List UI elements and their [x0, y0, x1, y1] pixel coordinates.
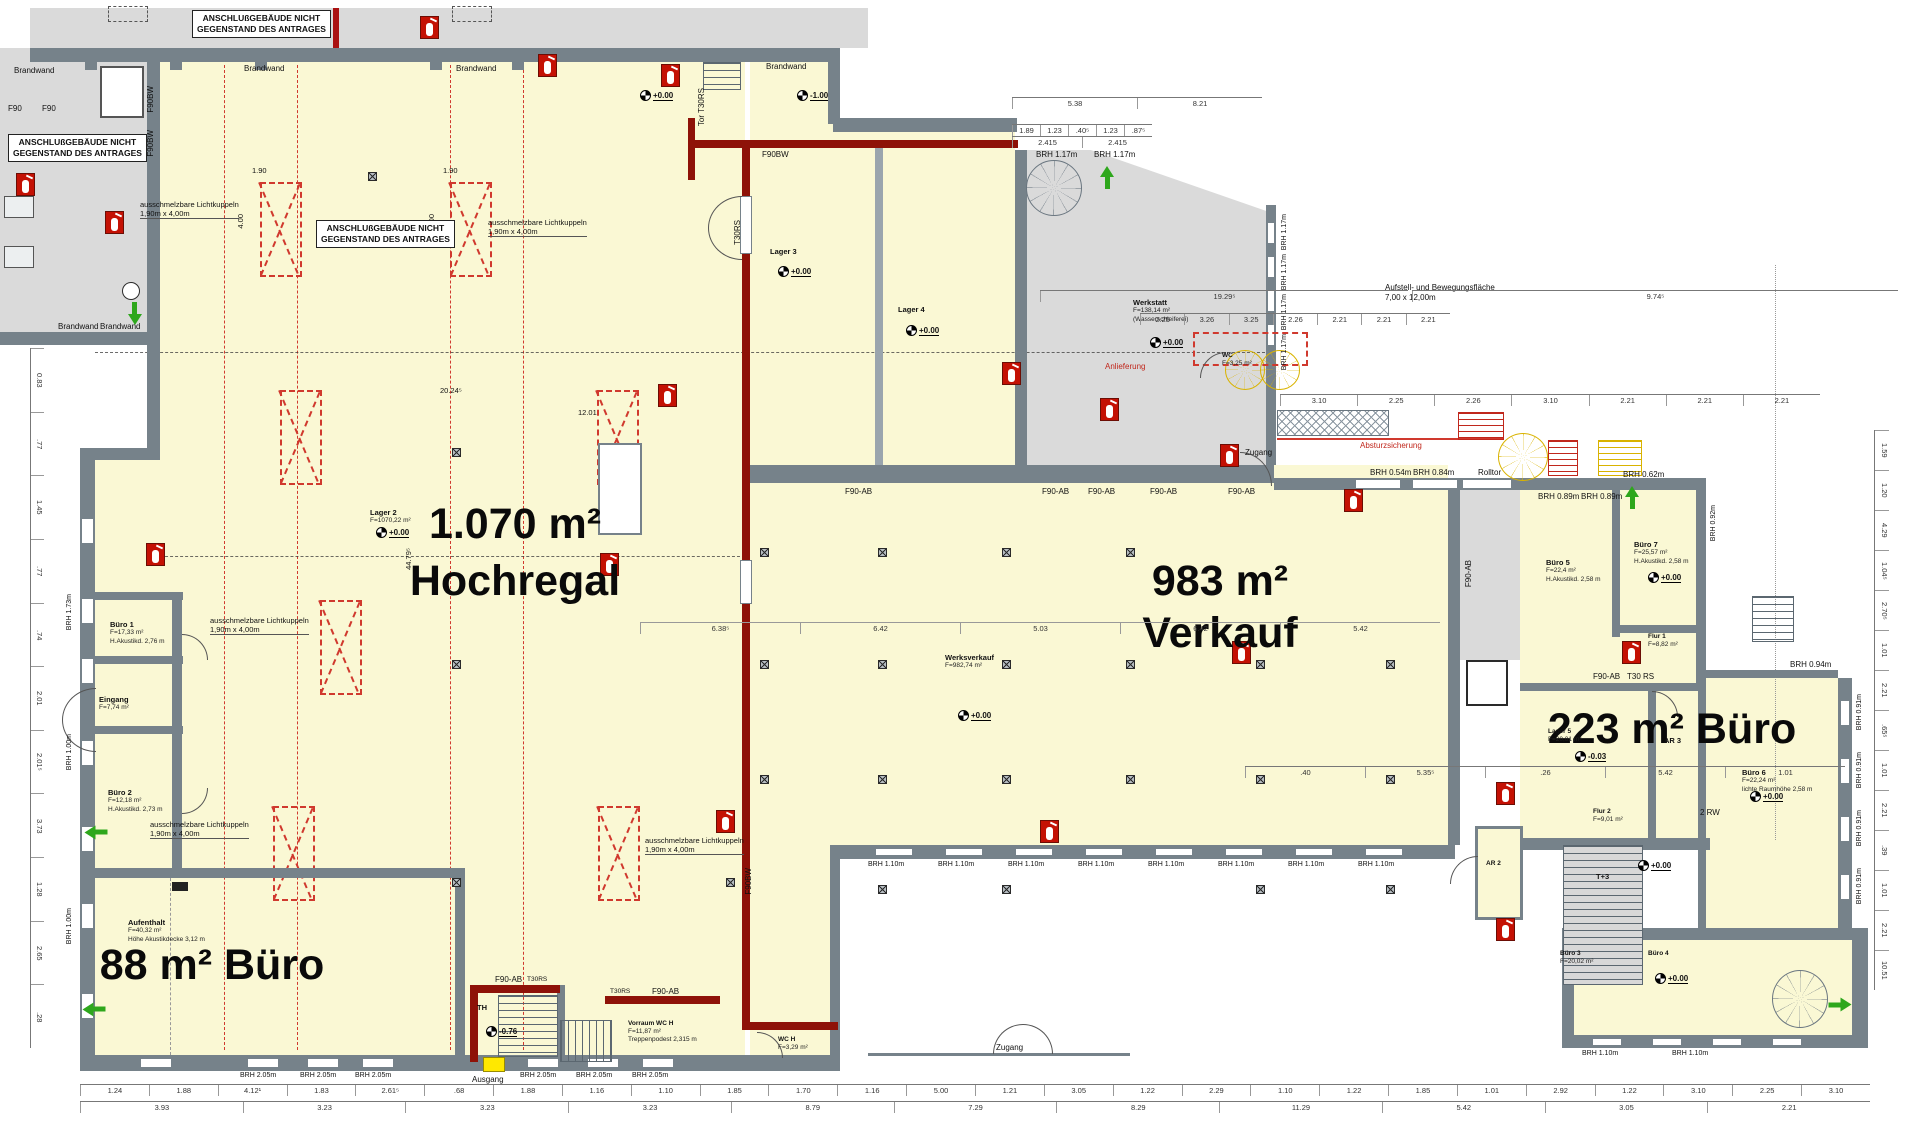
column-symbol — [760, 775, 769, 784]
dimension-col-right: 1.591.204.291.04⁵2.70⁵1.012.21.65⁵1.012.… — [1874, 430, 1889, 990]
area-title-hochregal-name: Hochregal — [410, 560, 620, 603]
dim-value: 1.22 — [1595, 1085, 1664, 1096]
desk-symbol — [4, 196, 34, 218]
dim-value: 1.83 — [287, 1085, 356, 1096]
room-info: F=12,18 m² — [108, 797, 163, 805]
dim-value: .87⁵ — [1124, 125, 1152, 136]
elevation-value: -1.00 — [810, 91, 828, 101]
room-label-buero5: Büro 5 F=22,4 m² H.Akustikd. 2,58 m — [1546, 558, 1601, 584]
room-info: H.Akustikd. 2,58 m — [1634, 558, 1689, 566]
room-label-t3: T+3 — [1596, 872, 1609, 881]
zugang-label: Zugang — [1245, 448, 1272, 458]
dim-value: 19.29⁵ — [1040, 291, 1408, 302]
dim-value: 5.42 — [1605, 767, 1725, 778]
fire-wall — [688, 140, 1018, 148]
area-title-verkauf-size: 983 m² — [1152, 560, 1288, 603]
room-name: Büro 7 — [1634, 540, 1689, 549]
room-info: F=17,33 m² — [110, 629, 165, 637]
room-info: F=3,25 m² — [1222, 360, 1252, 368]
column-symbol — [760, 548, 769, 557]
stairs-red — [1548, 440, 1578, 476]
dim-value: 2.61⁵ — [355, 1085, 424, 1096]
column-symbol — [878, 660, 887, 669]
dim-value: .40⁵ — [1068, 125, 1096, 136]
column-symbol — [1002, 885, 1011, 894]
t30rs-label: T30RS — [733, 220, 743, 245]
lichtkuppel-line2: 1,90m x 4,00m — [488, 227, 587, 237]
dimension-row-top2: 2.4152.415 — [1012, 136, 1152, 148]
area-title-buero88: 88 m² Büro — [100, 944, 325, 987]
fire-wall — [688, 118, 695, 180]
fire-extinguisher-icon — [105, 211, 124, 234]
room-info: F=9,01 m² — [1593, 816, 1623, 824]
lichtkuppel-line2: 1,90m x 4,00m — [140, 209, 239, 219]
fire-extinguisher-icon — [1100, 398, 1119, 421]
dim-value: 7.29 — [894, 1102, 1057, 1113]
fire-wall — [605, 996, 720, 1004]
elevation-marker: +0.00 — [778, 266, 811, 277]
wall — [1852, 928, 1868, 1048]
dim-value: 1.88 — [149, 1085, 218, 1096]
dim-value: 1.21 — [975, 1085, 1044, 1096]
dim-value: 3.23 — [568, 1102, 731, 1113]
window — [1355, 479, 1401, 489]
elevation-marker: -0.76 — [486, 1026, 517, 1037]
door-opening — [740, 560, 752, 604]
dim-value: 1.85 — [700, 1085, 769, 1096]
dim-value: .65⁵ — [1875, 710, 1889, 750]
column-symbol — [1126, 660, 1135, 669]
stairs — [560, 1020, 612, 1062]
fire-extinguisher-icon — [716, 810, 735, 833]
room-name: WC H — [778, 1036, 808, 1044]
f90ab-label: F90-AB — [845, 487, 872, 497]
machine-symbol — [122, 282, 140, 300]
fire-extinguisher-icon — [420, 16, 439, 39]
zugang-label: Zugang — [996, 1043, 1023, 1053]
room-label-lager5: Lager 5 F=20,01 m² — [1548, 728, 1581, 744]
dim-value: 1.28 — [31, 857, 44, 921]
dim-value: 1.23 — [1040, 125, 1068, 136]
elevation-marker: +0.00 — [1638, 860, 1671, 871]
dim-value: 5.00 — [906, 1085, 975, 1096]
window — [81, 598, 94, 624]
wall — [1612, 625, 1706, 633]
column-symbol — [878, 885, 887, 894]
fire-extinguisher-icon — [538, 54, 557, 77]
dim-value: 2.25 — [1140, 314, 1184, 325]
brandwand-label: Brandwand — [58, 322, 98, 332]
spiral-stairs-icon — [1498, 433, 1548, 481]
f90ab-label: F90-AB — [1228, 487, 1255, 497]
room-info: H.Akustikd. 2,76 m — [110, 638, 165, 646]
room-label-wc: WC F=3,25 m² — [1222, 352, 1252, 368]
lichtkuppel-line1: ausschmelzbare Lichtkuppeln — [488, 218, 587, 227]
lichtkuppel-line1: ausschmelzbare Lichtkuppeln — [150, 820, 249, 829]
wall — [95, 726, 183, 734]
wall — [30, 48, 840, 62]
dim-value: 3.10 — [1801, 1085, 1870, 1096]
dim-value: 3.25 — [1229, 314, 1273, 325]
annex-note-line1: ANSCHLUßGEBÄUDE NICHT — [13, 137, 142, 148]
dim-label: 12.01 — [578, 408, 597, 417]
elevation-marker: +0.00 — [906, 325, 939, 336]
column-symbol — [368, 172, 377, 181]
dim-value: 5.42 — [1280, 623, 1440, 634]
dim-value: 3.05 — [1044, 1085, 1113, 1096]
dim-value: 2.21 — [1406, 314, 1450, 325]
lichtkuppel-line2: 1,90m x 4,00m — [210, 625, 309, 635]
dim-value: 2.415 — [1082, 137, 1152, 148]
room-info: F=8,82 m² — [1648, 641, 1678, 649]
window — [247, 1058, 279, 1068]
room-name: Büro 2 — [108, 788, 163, 797]
t30rs-label: T30RS — [527, 976, 547, 984]
brh-label: BRH 1.10m — [1218, 861, 1254, 869]
brh-label: BRH 1.73m — [66, 594, 74, 630]
room-name: Werksverkauf — [945, 653, 994, 662]
lichtkuppel-label: ausschmelzbare Lichtkuppeln 1,90m x 4,00… — [150, 820, 249, 839]
column-symbol — [760, 660, 769, 669]
f90ab-label: F90-AB — [1150, 487, 1177, 497]
dim-value: 1.45 — [31, 475, 44, 539]
window — [1267, 222, 1275, 244]
wall — [95, 592, 183, 600]
wall-pilaster — [170, 62, 182, 70]
dim-label: 1.90 — [252, 166, 267, 175]
elevation-value: +0.00 — [1651, 861, 1671, 871]
room-label-vorraum: Vorraum WC H F=11,87 m² Treppenpodest 2,… — [628, 1020, 697, 1044]
crossed-shaft — [100, 66, 144, 118]
tor-t30rs-label: Tor T30RS — [697, 88, 707, 126]
column-symbol — [1256, 660, 1265, 669]
room-info: F=20,02 m² — [1560, 958, 1593, 966]
fire-extinguisher-icon — [1622, 641, 1641, 664]
fire-wall-marker — [333, 8, 339, 48]
dim-value: 1.22 — [1113, 1085, 1182, 1096]
column-symbol — [1002, 548, 1011, 557]
window — [1592, 1038, 1622, 1046]
area-title-hochregal-size: 1.070 m² — [429, 503, 601, 546]
dim-value: 2.92 — [1526, 1085, 1595, 1096]
window — [1840, 874, 1850, 900]
dim-value: 3.10 — [1280, 395, 1357, 406]
dim-value: 3.05 — [1545, 1102, 1708, 1113]
dim-value: 1.01 — [1875, 750, 1889, 790]
wall — [95, 656, 183, 664]
dim-value: 2.21 — [1875, 910, 1889, 950]
dim-value: 1.20 — [1875, 470, 1889, 510]
dim-value: 2.21 — [1666, 395, 1743, 406]
room-name: Büro 5 — [1546, 558, 1601, 567]
wall-pilaster — [85, 62, 97, 70]
column-symbol — [452, 660, 461, 669]
room-label-ar2: AR 2 — [1486, 860, 1501, 868]
room-label-aufenthalt: Aufenthalt F=40,32 m² Höhe Akustikdecke … — [128, 918, 205, 944]
room-label-buero3: Büro 3 F=20,02 m² — [1560, 950, 1593, 966]
column-symbol — [1126, 775, 1135, 784]
room-label-th: TH — [477, 1003, 487, 1012]
room-name: Lager 5 — [1548, 728, 1581, 736]
dim-value: 2.01⁵ — [31, 730, 44, 794]
brh-label: BRH 0.94m — [1790, 660, 1831, 670]
room-label-buero1: Büro 1 F=17,33 m² H.Akustikd. 2,76 m — [110, 620, 165, 646]
annex-note-line2: GEGENSTAND DES ANTRAGES — [13, 148, 142, 159]
dim-label: 44.79⁵ — [404, 548, 413, 570]
light-dome — [280, 390, 322, 485]
f90ab-label: F90-AB — [495, 975, 522, 985]
dimension-row-bottom-right: .405.35⁵.265.421.01 — [1245, 766, 1845, 778]
dim-value: 1.01 — [1457, 1085, 1526, 1096]
room-name: Flur 2 — [1593, 808, 1623, 816]
annex-note-box: ANSCHLUßGEBÄUDE NICHT GEGENSTAND DES ANT… — [316, 220, 455, 248]
dim-value: 6.42 — [1120, 623, 1280, 634]
floor-plan: ANSCHLUßGEBÄUDE NICHT GEGENSTAND DES ANT… — [0, 0, 1919, 1129]
dim-value: 1.88 — [493, 1085, 562, 1096]
brh-label: BRH 1.17m — [1036, 150, 1077, 160]
elevation-value: +0.00 — [919, 326, 939, 336]
window — [1840, 816, 1850, 842]
room-label-lager4: Lager 4 — [898, 305, 925, 314]
f90ab-label: F90-AB — [1088, 487, 1115, 497]
room-name: TH — [477, 1003, 487, 1012]
dimension-long-a: 19.29⁵ — [1040, 290, 1408, 302]
dim-value: 4.12¹ — [218, 1085, 287, 1096]
room-label-buero2: Büro 2 F=12,18 m² H.Akustikd. 2,73 m — [108, 788, 163, 814]
lichtkuppel-label: ausschmelzbare Lichtkuppeln 1,90m x 4,00… — [488, 218, 587, 237]
brh-label: BRH 1.17m — [1281, 214, 1289, 250]
f90bw-label: F90BW — [146, 130, 156, 157]
brh-label: BRH 2.05m — [355, 1072, 391, 1080]
room-name: Lager 2 — [370, 508, 411, 517]
dim-value: 2.25 — [1357, 395, 1434, 406]
dimension-row-bottom1: 1.241.884.12¹1.832.61⁵.681.881.161.101.8… — [80, 1084, 1870, 1096]
dim-value: 2.01 — [31, 666, 44, 730]
dim-value: 1.89 — [1012, 125, 1040, 136]
dim-value: 2.21 — [1589, 395, 1666, 406]
window — [81, 903, 94, 929]
dim-value: 2.21 — [1875, 670, 1889, 710]
dim-value: 3.23 — [405, 1102, 568, 1113]
fire-extinguisher-icon — [1344, 489, 1363, 512]
light-dome — [450, 182, 492, 277]
storage-room-ar2 — [1475, 826, 1523, 920]
room-label-flur2: Flur 2 F=9,01 m² — [1593, 808, 1623, 824]
dim-value: .28 — [31, 984, 44, 1048]
room-label-wch: WC H F=3,29 m² — [778, 1036, 808, 1052]
wall — [750, 465, 1274, 483]
column-symbol — [1256, 885, 1265, 894]
dim-value: 3.23 — [243, 1102, 406, 1113]
brh-label: BRH 1.17m — [1094, 150, 1135, 160]
dim-value: 1.59 — [1875, 430, 1889, 470]
window — [1652, 1038, 1682, 1046]
elevation-value: +0.00 — [1661, 573, 1681, 583]
fire-extinguisher-icon — [1496, 782, 1515, 805]
lichtkuppel-line1: ausschmelzbare Lichtkuppeln — [645, 836, 744, 845]
room-label-lager2: Lager 2 F=1070,22 m² — [370, 508, 411, 526]
brh-label: BRH 0.89m — [1581, 492, 1622, 502]
dim-value: 1.01 — [1875, 630, 1889, 670]
dim-label: 4.00 — [236, 214, 245, 229]
room-info: F=22,24 m² — [1742, 777, 1812, 785]
fire-extinguisher-icon — [146, 543, 165, 566]
column-symbol — [1002, 775, 1011, 784]
dim-value: 6.38⁵ — [640, 623, 800, 634]
elevation-marker: -1.00 — [797, 90, 828, 101]
escape-arrow-icon — [83, 1003, 108, 1017]
dim-value: 2.415 — [1012, 137, 1082, 148]
stairs — [703, 62, 741, 90]
dim-value: 1.85 — [1388, 1085, 1457, 1096]
dim-value: 3.93 — [80, 1102, 243, 1113]
dim-value: 5.03 — [960, 623, 1120, 634]
fire-extinguisher-icon — [1496, 918, 1515, 941]
f90ab-label: F90-AB — [652, 987, 679, 997]
tag-chip — [172, 882, 188, 891]
dim-value: 2.26 — [1434, 395, 1511, 406]
brh-label: BRH 2.05m — [576, 1072, 612, 1080]
dim-value: 1.23 — [1096, 125, 1124, 136]
annex-note-line1: ANSCHLUßGEBÄUDE NICHT — [197, 13, 326, 24]
t30rs-label: T30 RS — [1627, 672, 1654, 682]
room-label-flur1: Flur 1 F=8,82 m² — [1648, 633, 1678, 649]
dim-value: 1.16 — [562, 1085, 631, 1096]
desk-symbol — [4, 246, 34, 268]
window — [1015, 848, 1053, 856]
dimension-row-mid: 2.253.263.252.262.212.212.21 — [1140, 313, 1450, 325]
brh-label: BRH 1.10m — [1672, 1050, 1708, 1058]
window — [945, 848, 983, 856]
room-name: Flur 1 — [1648, 633, 1678, 641]
escape-arrow-icon — [1827, 998, 1852, 1012]
dim-value: 2.65 — [31, 921, 44, 985]
floor-lager-west — [750, 62, 835, 465]
f90ab-label: F90-AB — [1464, 560, 1474, 587]
room-label-buero7: Büro 7 F=25,57 m² H.Akustikd. 2,58 m — [1634, 540, 1689, 566]
room-info: F=1070,22 m² — [370, 517, 411, 525]
annex-zone-top — [30, 8, 868, 48]
dim-value: .39 — [1875, 830, 1889, 870]
window — [642, 1058, 674, 1068]
light-dome — [320, 600, 362, 695]
dim-value: 1.01 — [1725, 767, 1845, 778]
escape-arrow-icon — [1100, 166, 1114, 191]
window — [81, 658, 94, 684]
stairs — [1752, 596, 1794, 642]
room-name: Büro 3 — [1560, 950, 1593, 958]
room-name: AR 3 — [1664, 736, 1681, 745]
room-name: T+3 — [1596, 872, 1609, 881]
dimension-row-top0: 5.388.21 — [1012, 97, 1262, 109]
fire-extinguisher-icon — [1220, 444, 1239, 467]
lichtkuppel-label: ausschmelzbare Lichtkuppeln 1,90m x 4,00… — [140, 200, 239, 219]
room-info: F=20,01 m² — [1548, 736, 1581, 744]
brh-label: BRH 0.62m — [1623, 470, 1664, 480]
wall — [1612, 490, 1620, 637]
f90bw-label: F90BW — [146, 86, 156, 113]
window — [1085, 848, 1123, 856]
room-name: WC — [1222, 352, 1252, 360]
absturzsicherung-label: Absturzsicherung — [1360, 441, 1422, 451]
brh-label: BRH 2.05m — [520, 1072, 556, 1080]
elevation-value: +0.00 — [1668, 974, 1688, 984]
brh-label: BRH 0.89m — [1538, 492, 1579, 502]
rolltor-label: Rolltor — [1478, 468, 1501, 478]
wall — [455, 868, 465, 1062]
spiral-stairs-icon — [1026, 160, 1082, 216]
dim-value: 2.21 — [1743, 395, 1820, 406]
wall — [147, 345, 160, 455]
wall-pilaster — [430, 62, 442, 70]
brh-label: BRH 1.10m — [1148, 861, 1184, 869]
fire-extinguisher-icon — [661, 64, 680, 87]
fire-extinguisher-icon — [658, 384, 677, 407]
dimension-row-top1: 1.891.23.40⁵1.23.87⁵ — [1012, 124, 1152, 136]
dim-value: .77 — [31, 539, 44, 603]
window — [1267, 256, 1275, 278]
room-info: H.Akustikd. 2,73 m — [108, 806, 163, 814]
dim-value: 1.10 — [1250, 1085, 1319, 1096]
f90bw-label: F90BW — [762, 150, 789, 160]
fire-extinguisher-icon — [16, 173, 35, 196]
dim-value: 2.29 — [1182, 1085, 1251, 1096]
dim-value: 2.26 — [1273, 314, 1317, 325]
elevation-value: +0.00 — [1763, 792, 1783, 802]
room-info: F=3,29 m² — [778, 1044, 808, 1052]
lichtkuppel-label: ausschmelzbare Lichtkuppeln 1,90m x 4,00… — [210, 616, 309, 635]
column-symbol — [452, 878, 461, 887]
dim-value: 2.21 — [1707, 1102, 1870, 1113]
axis-line — [95, 352, 1270, 353]
brh-label: BRH 1.10m — [1078, 861, 1114, 869]
brh-label: BRH 1.10m — [868, 861, 904, 869]
fire-extinguisher-icon — [1040, 820, 1059, 843]
window — [1772, 1038, 1802, 1046]
wall — [1520, 683, 1706, 691]
room-info: F=7,74 m² — [99, 704, 129, 712]
window — [1840, 700, 1850, 726]
elevation-value: +0.00 — [1163, 338, 1183, 348]
elevation-marker: +0.00 — [1750, 791, 1783, 802]
column-symbol — [1126, 548, 1135, 557]
dimension-col-left: 0.83.771.45.77.742.012.01⁵3.731.282.65.2… — [30, 348, 44, 1048]
window — [527, 1058, 559, 1068]
door-arc — [1450, 856, 1478, 884]
column-symbol — [726, 878, 735, 887]
conveyor-hatch — [1277, 410, 1389, 436]
elevation-value: +0.00 — [389, 528, 409, 538]
dim-value: 2.21 — [1317, 314, 1361, 325]
t30rs-label: T30RS — [610, 988, 630, 996]
dim-value: 3.10 — [1511, 395, 1588, 406]
brandwand-label: Brandwand — [766, 62, 806, 72]
room-name: Büro 4 — [1648, 950, 1669, 958]
elevation-value: +0.00 — [791, 267, 811, 277]
elevation-marker: +0.00 — [1655, 973, 1688, 984]
room-info: H.Akustikd. 2,58 m — [1546, 576, 1601, 584]
room-label-werksverkauf: Werksverkauf F=982,74 m² — [945, 653, 994, 671]
room-info: F=11,87 m² — [628, 1028, 697, 1036]
room-info: F=22,4 m² — [1546, 567, 1601, 575]
dim-value: .26 — [1485, 767, 1605, 778]
dim-value: 9.74⁵ — [1412, 291, 1898, 302]
light-dome — [260, 182, 302, 277]
brh-label: BRH 1.10m — [1358, 861, 1394, 869]
brandwand-label: Brandwand — [14, 66, 54, 76]
room-info: Treppenpodest 2,315 m — [628, 1036, 697, 1044]
dim-value: 2.21 — [1875, 790, 1889, 830]
